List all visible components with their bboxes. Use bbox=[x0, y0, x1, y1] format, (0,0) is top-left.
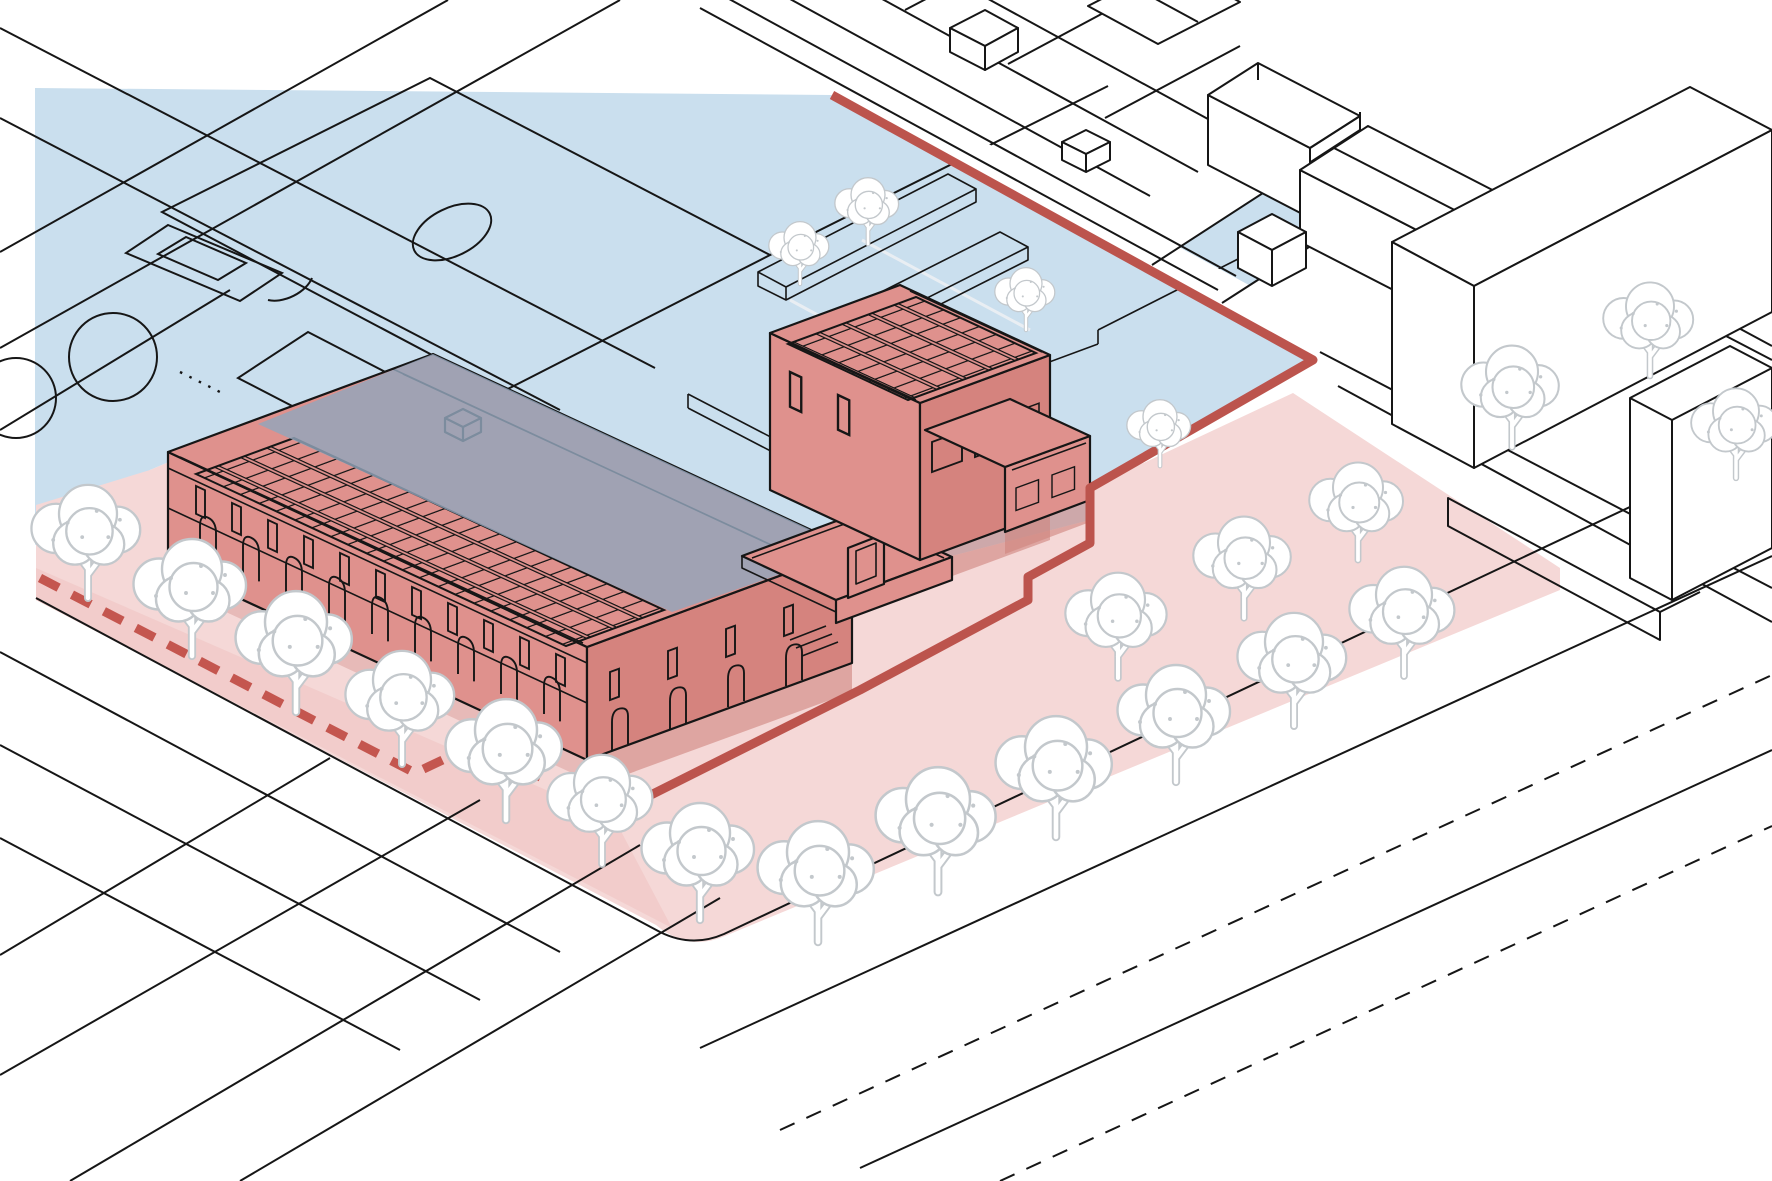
site-axonometric-diagram bbox=[0, 0, 1772, 1181]
